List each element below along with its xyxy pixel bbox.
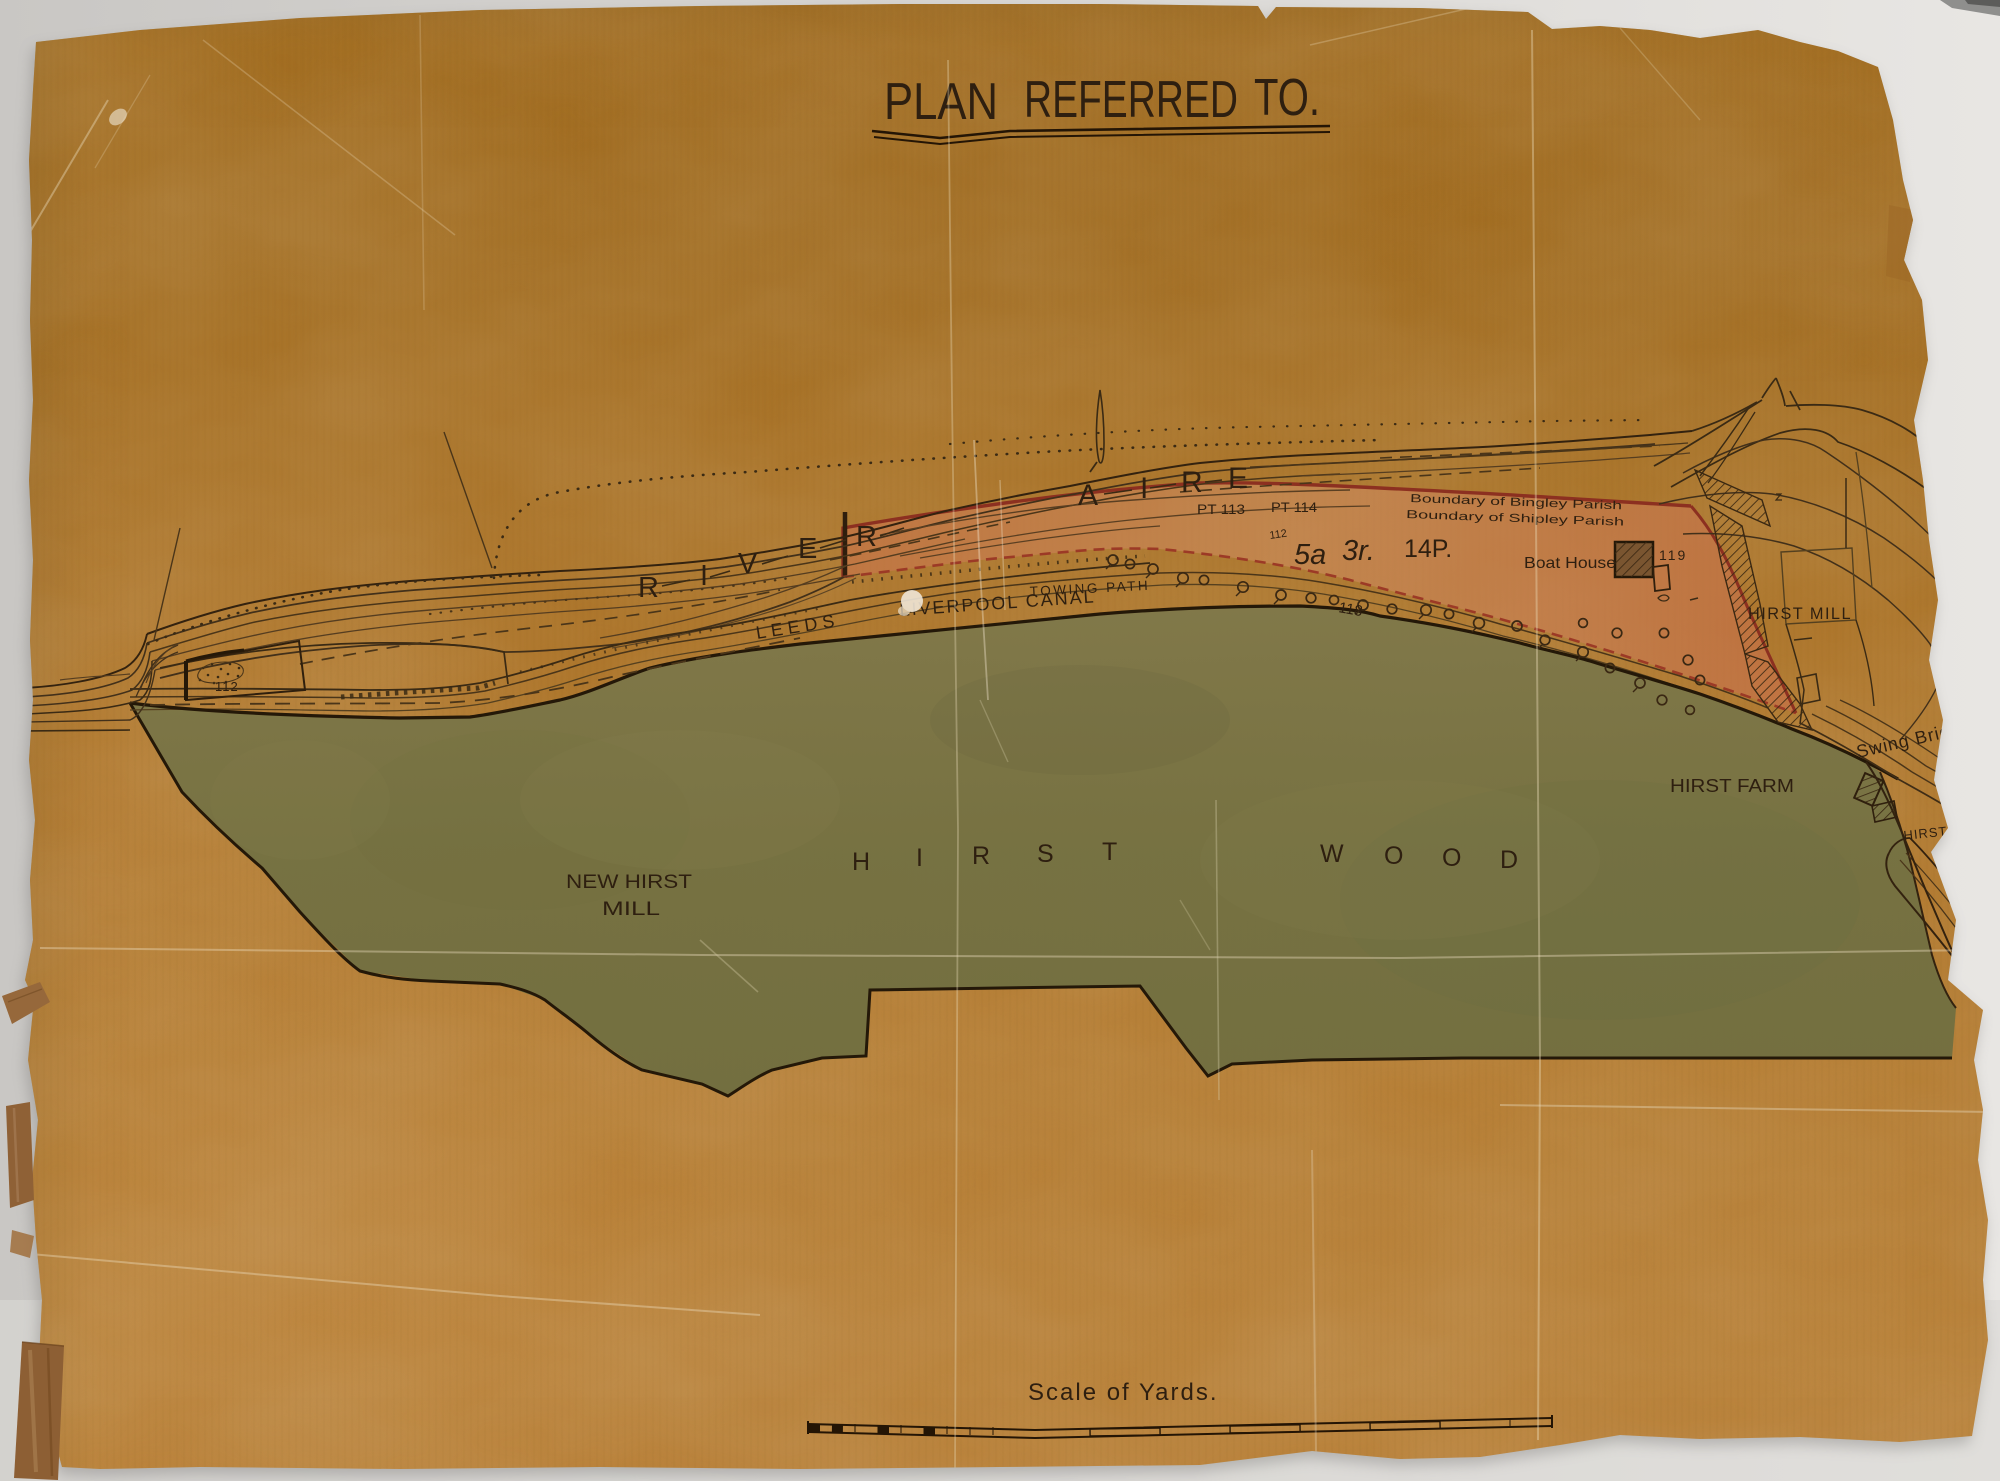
svg-text:112: 112 [1269,528,1288,542]
svg-text:W: W [1320,840,1344,868]
svg-text:R: R [972,842,990,870]
svg-text:E: E [798,533,817,565]
svg-text:A: A [1078,479,1098,512]
svg-text:R: R [1181,466,1203,499]
svg-text:T: T [1102,838,1117,866]
svg-text:HIRST MILL: HIRST MILL [1748,604,1852,623]
svg-text:PLAN: PLAN [884,73,998,131]
svg-text:5a: 5a [1294,539,1326,571]
svg-text:PT 114: PT 114 [1271,500,1318,515]
svg-text:O: O [1442,844,1461,872]
svg-text:O: O [1384,842,1403,870]
svg-text:MILL: MILL [602,899,660,920]
svg-text:14P.: 14P. [1404,535,1452,563]
svg-text:H: H [852,848,870,876]
svg-text:I: I [1140,472,1148,505]
svg-text:R: R [856,521,877,553]
svg-text:HIRST FARM: HIRST FARM [1670,776,1794,796]
svg-text:Scale of Yards.: Scale of Yards. [1028,1379,1219,1406]
svg-text:I: I [700,560,708,592]
svg-text:Boat House: Boat House [1524,555,1616,572]
svg-text:NEW HIRST: NEW HIRST [566,872,692,893]
svg-text:S: S [1037,840,1054,868]
svg-text:TO.: TO. [1254,69,1320,127]
svg-text:112: 112 [215,679,239,694]
svg-text:V: V [738,548,758,580]
svg-text:D: D [1500,846,1518,874]
svg-text:3r.: 3r. [1342,535,1375,567]
svg-text:E: E [1228,462,1248,495]
svg-text:119: 119 [1659,547,1687,563]
svg-text:I: I [916,844,923,872]
svg-text:PT 113: PT 113 [1197,502,1245,517]
svg-text:REFERRED: REFERRED [1024,71,1238,129]
svg-text:R: R [638,572,659,604]
